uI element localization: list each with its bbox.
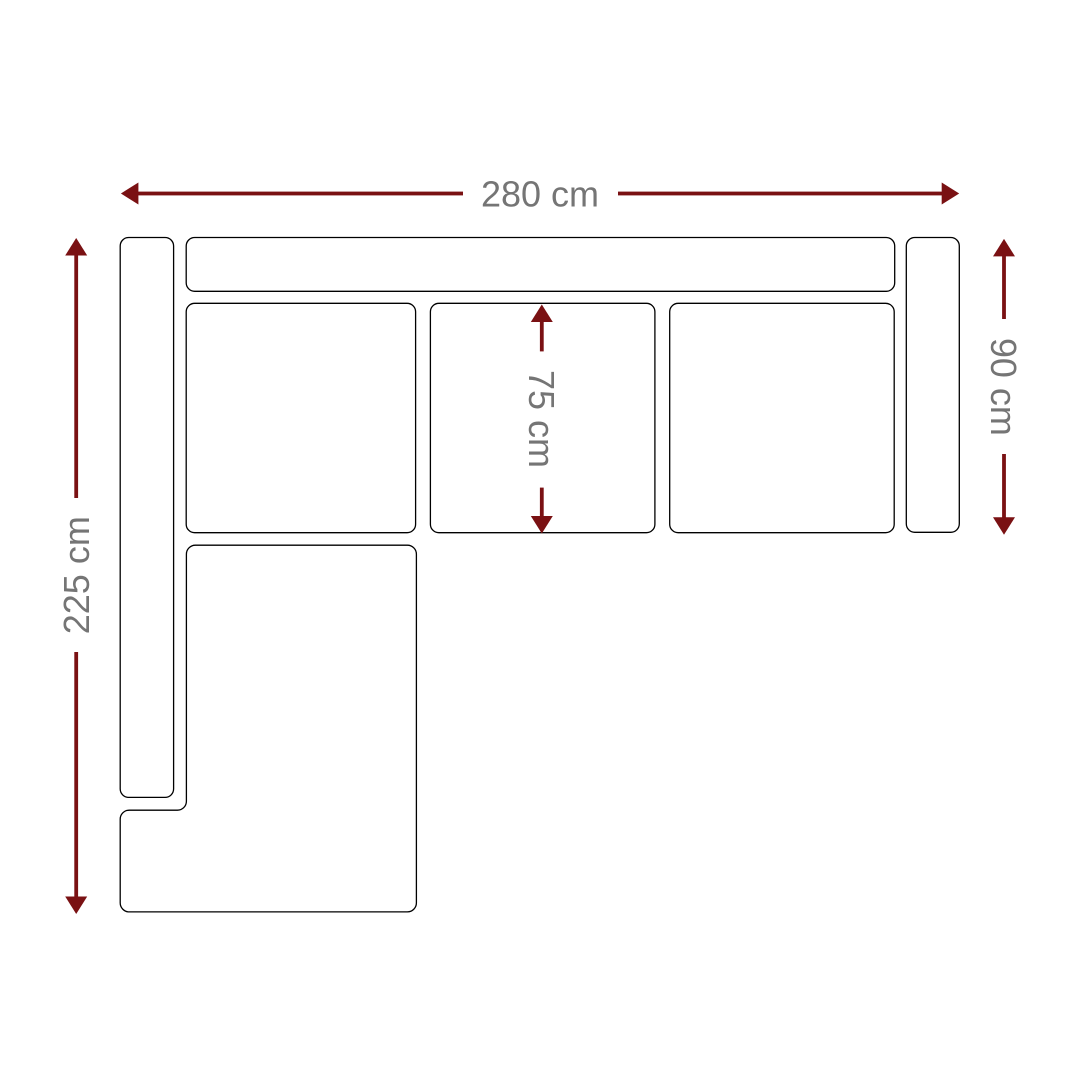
svg-text:280 cm: 280 cm <box>481 174 599 215</box>
svg-text:90 cm: 90 cm <box>983 338 1024 436</box>
svg-text:225 cm: 225 cm <box>56 516 97 634</box>
svg-text:75 cm: 75 cm <box>521 370 562 468</box>
